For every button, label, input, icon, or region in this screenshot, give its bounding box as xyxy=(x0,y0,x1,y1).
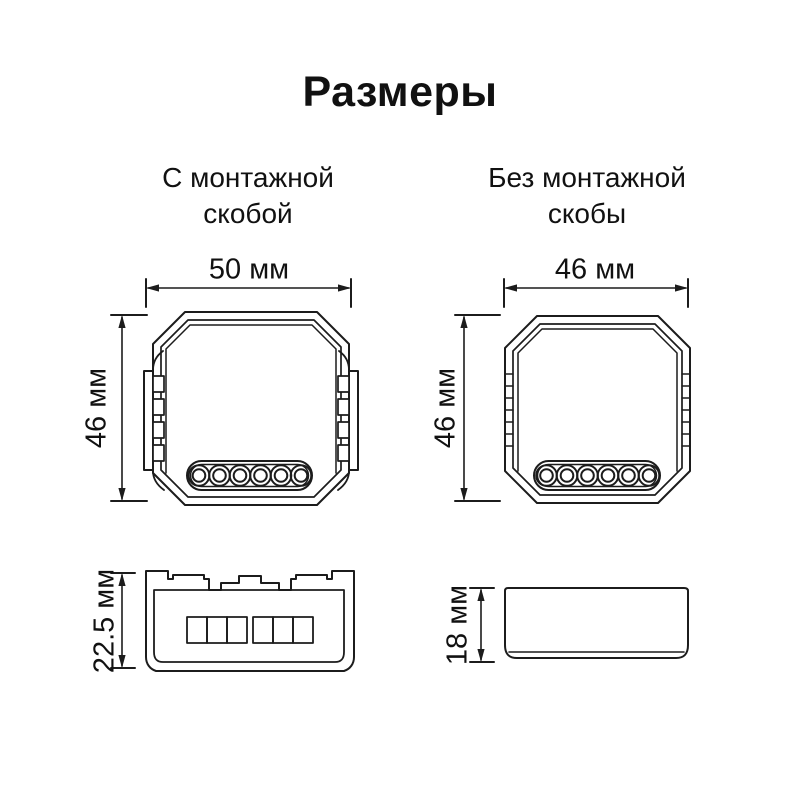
terminal-holes xyxy=(536,465,659,486)
width-label-with-bracket: 50 мм xyxy=(209,254,289,287)
dim-height-with-bracket xyxy=(111,315,147,501)
front-view-with-bracket xyxy=(144,312,358,505)
device-inner-outline-2 xyxy=(518,329,677,471)
bracket-teeth-left xyxy=(153,376,164,461)
depth-label-without-bracket: 18 мм xyxy=(442,585,475,665)
front-view-without-bracket xyxy=(505,316,690,503)
page-title: Размеры xyxy=(0,68,800,117)
arrowhead-right-icon xyxy=(675,284,688,291)
device-inner-outline-2 xyxy=(166,325,336,473)
arrowhead-right-icon xyxy=(338,284,351,291)
body-outline xyxy=(154,590,344,662)
depth-label-with-bracket: 22.5 мм xyxy=(89,569,122,673)
terminal-holes xyxy=(189,465,312,486)
technical-drawing xyxy=(0,0,800,800)
arrowhead-left-icon xyxy=(504,284,517,291)
heading-without-bracket-line2: скобы xyxy=(427,196,747,232)
side-view-without-bracket xyxy=(505,588,688,658)
arrowhead-up-icon xyxy=(118,315,125,328)
side-view-with-bracket xyxy=(146,571,354,671)
terminal-block xyxy=(534,461,660,490)
dimensions-diagram: Размеры С монтажной скобой Без монтажной… xyxy=(0,0,800,800)
heading-with-bracket-line2: скобой xyxy=(88,196,408,232)
dim-extension-ticks xyxy=(111,315,147,501)
height-label-with-bracket: 46 мм xyxy=(81,368,114,448)
height-label-without-bracket: 46 мм xyxy=(430,368,463,448)
terminal-block xyxy=(187,461,312,490)
width-label-without-bracket: 46 мм xyxy=(555,254,635,287)
heading-without-bracket: Без монтажной скобы xyxy=(427,160,747,232)
mounting-plate-right xyxy=(349,371,358,470)
arrowhead-left-icon xyxy=(146,284,159,291)
arrowhead-down-icon xyxy=(460,488,467,501)
mounting-plate-left xyxy=(144,371,153,470)
bracket-strap-hooks xyxy=(153,351,349,490)
body-outline xyxy=(505,588,688,658)
terminal-openings xyxy=(187,617,313,643)
arrowhead-up-icon xyxy=(460,315,467,328)
heading-with-bracket: С монтажной скобой xyxy=(88,160,408,232)
arrowhead-down-icon xyxy=(477,649,484,662)
bracket-teeth-right xyxy=(338,376,349,461)
heading-with-bracket-line1: С монтажной xyxy=(88,160,408,196)
heading-without-bracket-line1: Без монтажной xyxy=(427,160,747,196)
arrowhead-up-icon xyxy=(477,588,484,601)
bracket-profile-outline xyxy=(146,571,354,671)
side-ribs xyxy=(505,374,690,446)
arrowhead-down-icon xyxy=(118,488,125,501)
